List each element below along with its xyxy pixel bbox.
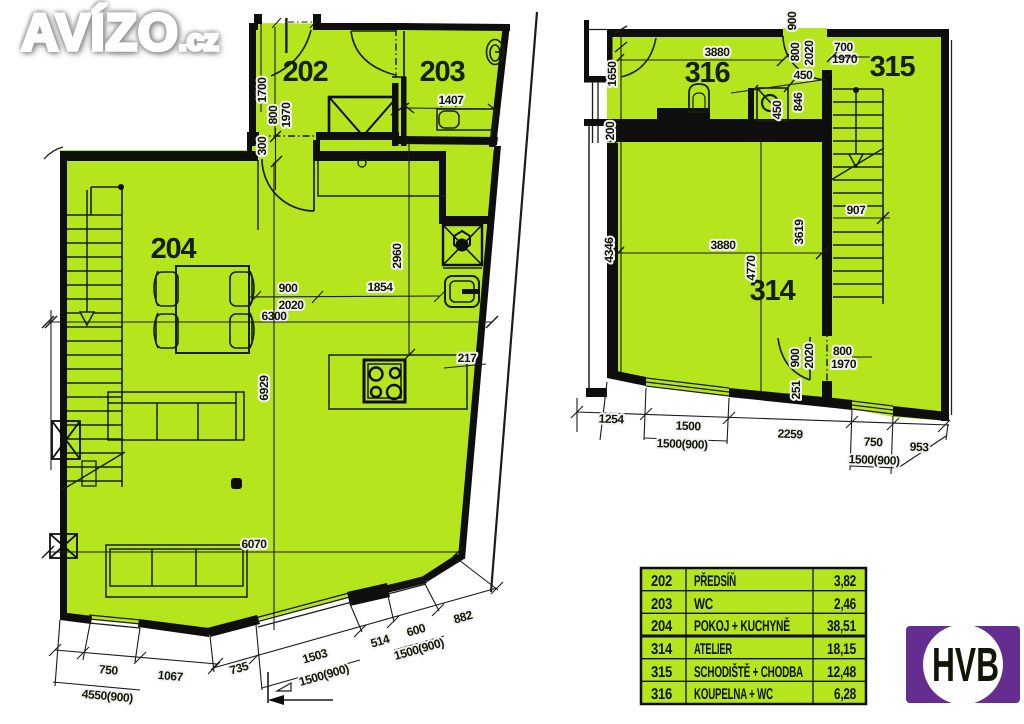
svg-text:ATELIER: ATELIER [694,641,732,658]
svg-text:2020: 2020 [802,40,816,66]
svg-text:6070: 6070 [241,537,267,551]
svg-text:800: 800 [833,344,853,358]
svg-text:251: 251 [789,380,803,400]
svg-text:1254: 1254 [598,412,624,427]
svg-text:450: 450 [794,68,814,82]
svg-text:203: 203 [420,56,466,88]
svg-text:4346: 4346 [602,237,616,263]
svg-text:900: 900 [788,348,802,368]
svg-text:1500(900): 1500(900) [656,436,708,452]
svg-text:1854: 1854 [367,280,393,294]
svg-text:450: 450 [770,100,784,120]
svg-text:2259: 2259 [777,427,803,442]
svg-text:315: 315 [651,664,673,681]
svg-text:800: 800 [266,105,280,125]
svg-text:38,51: 38,51 [827,618,857,635]
svg-text:POKOJ + KUCHYNĚ: POKOJ + KUCHYNĚ [694,617,790,635]
svg-text:1407: 1407 [438,93,464,107]
svg-text:1500: 1500 [675,419,701,434]
svg-text:3880: 3880 [710,238,736,252]
svg-text:1970: 1970 [831,357,857,371]
svg-text:314: 314 [651,641,673,658]
svg-text:6929: 6929 [257,375,271,401]
svg-text:200: 200 [603,121,617,141]
svg-text:316: 316 [685,57,731,89]
svg-text:300: 300 [255,136,269,156]
svg-text:202: 202 [283,56,328,88]
svg-text:900: 900 [785,11,799,31]
svg-text:PŘEDSÍŇ: PŘEDSÍŇ [694,572,736,590]
svg-text:900: 900 [279,281,299,295]
svg-text:1700: 1700 [255,77,269,103]
svg-text:1500(900): 1500(900) [848,452,900,468]
svg-text:800: 800 [788,42,802,62]
svg-text:18,15: 18,15 [827,641,857,658]
svg-text:750: 750 [98,662,119,678]
svg-text:846: 846 [791,92,805,112]
svg-text:204: 204 [151,233,197,265]
svg-text:1970: 1970 [279,102,293,128]
svg-text:2020: 2020 [802,343,816,369]
svg-text:316: 316 [651,686,673,703]
svg-text:HVB: HVB [932,639,999,692]
svg-text:203: 203 [651,596,673,613]
svg-text:3880: 3880 [704,45,730,59]
svg-text:750: 750 [863,435,883,450]
svg-text:202: 202 [651,573,672,590]
svg-text:907: 907 [847,203,867,217]
svg-text:3,82: 3,82 [834,573,856,590]
svg-text:953: 953 [909,440,929,455]
svg-text:KOUPELNA + WC: KOUPELNA + WC [694,686,773,703]
svg-text:WC: WC [694,596,713,613]
svg-text:2960: 2960 [390,243,404,269]
svg-text:3619: 3619 [792,219,806,245]
svg-text:204: 204 [651,618,673,635]
svg-text:315: 315 [870,51,916,83]
svg-text:6,28: 6,28 [834,686,857,703]
svg-text:1650: 1650 [605,61,619,87]
svg-text:1067: 1067 [157,668,184,684]
svg-text:12,48: 12,48 [827,664,857,681]
svg-text:2,46: 2,46 [834,596,857,613]
svg-text:217: 217 [458,351,478,365]
svg-text:SCHODIŠTĚ + CHODBA: SCHODIŠTĚ + CHODBA [694,663,803,681]
svg-text:4770: 4770 [744,255,758,281]
